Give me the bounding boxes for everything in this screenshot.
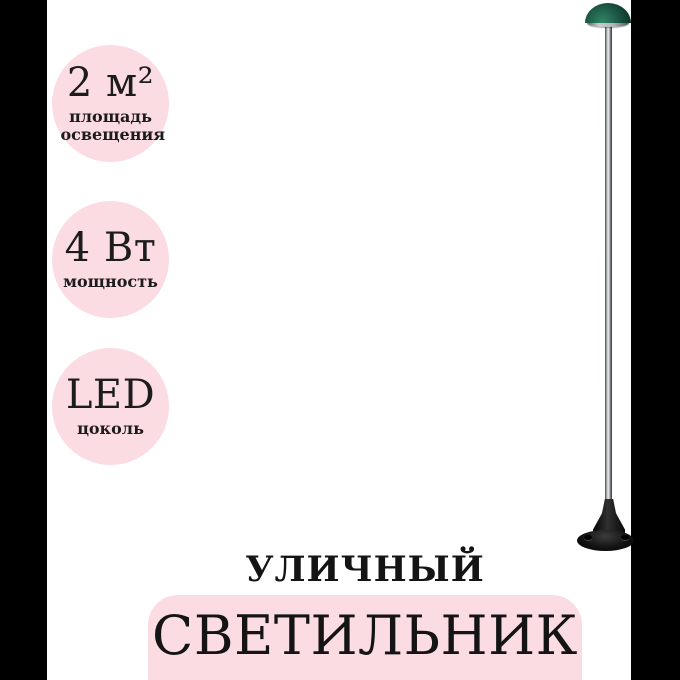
badge-led-socket-value: LED [66, 375, 155, 416]
lamp-dome [585, 3, 631, 23]
badge-lighting-area-value: 2 м² [67, 63, 154, 104]
product-title-line1: УЛИЧНЫЙ [148, 549, 582, 590]
product-title-band: СВЕТИЛЬНИК [148, 595, 582, 680]
badge-led-socket-label: цоколь [77, 420, 144, 438]
lamp-base-bolt-hole-left [584, 535, 592, 540]
lamp-pole [605, 25, 612, 503]
pillarbox-left-bar [0, 0, 47, 680]
lamp-base-bolt-hole-right [621, 535, 629, 540]
pillarbox-right-bar [631, 0, 680, 680]
product-card: 2 м² площадь освещения 4 Вт мощность LED… [0, 0, 680, 680]
product-title-line2: СВЕТИЛЬНИК [152, 604, 578, 667]
badge-led-socket: LED цоколь [52, 348, 169, 465]
lamp-base-cone [593, 499, 625, 533]
badge-lighting-area: 2 м² площадь освещения [52, 45, 169, 162]
badge-power-value: 4 Вт [65, 228, 157, 269]
lamp-base-disc [577, 530, 634, 551]
badge-power-label: мощность [63, 273, 158, 291]
badge-power: 4 Вт мощность [52, 201, 169, 318]
badge-lighting-area-label: площадь освещения [61, 108, 161, 145]
